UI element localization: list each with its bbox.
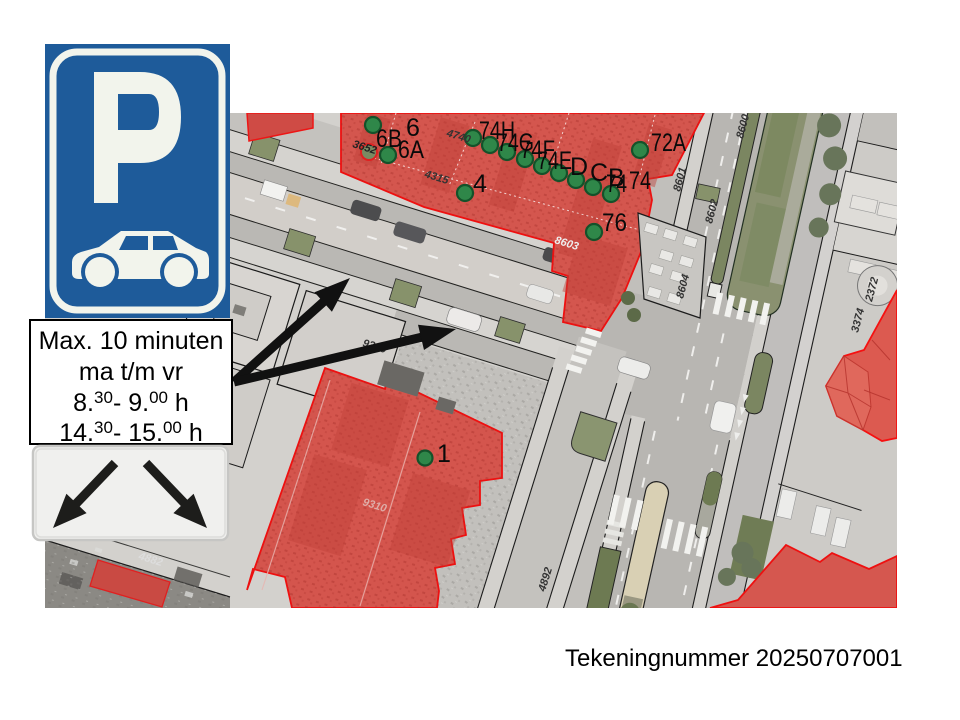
svg-text:1: 1 xyxy=(437,440,451,468)
svg-text:Tekeningnummer 20250707001: Tekeningnummer 20250707001 xyxy=(565,645,903,672)
svg-text:74E: 74E xyxy=(537,147,572,175)
svg-text:4: 4 xyxy=(473,170,487,198)
svg-text:72A: 72A xyxy=(651,129,686,157)
svg-text:74: 74 xyxy=(606,170,627,198)
svg-text:8.30- 9.00 h: 8.30- 9.00 h xyxy=(73,388,189,417)
svg-text:14.30- 15.00 h: 14.30- 15.00 h xyxy=(59,418,203,447)
svg-text:ma t/m vr: ma t/m vr xyxy=(79,358,183,386)
svg-text:D: D xyxy=(570,153,588,181)
svg-text:74: 74 xyxy=(629,167,651,195)
svg-text:76: 76 xyxy=(602,209,627,237)
svg-text:6A: 6A xyxy=(398,136,424,164)
svg-text:Max. 10 minuten: Max. 10 minuten xyxy=(39,327,224,355)
